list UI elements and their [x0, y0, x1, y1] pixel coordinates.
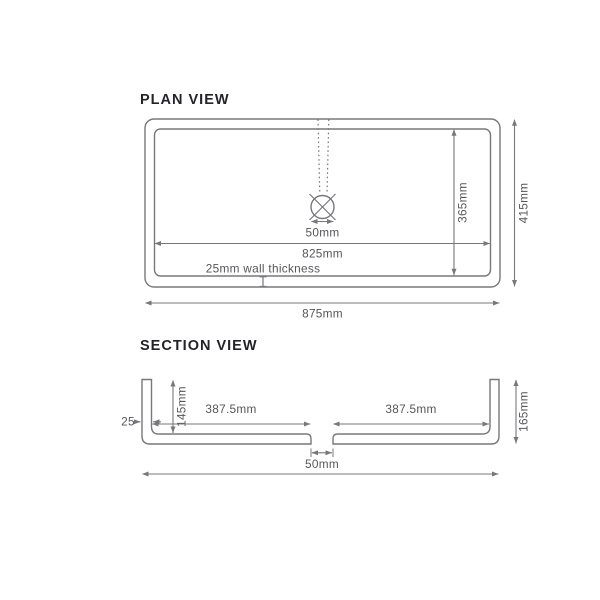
- plan-outer-rim: [145, 119, 500, 287]
- section-dim-label-overall-height: 165mm: [517, 391, 531, 432]
- section-dim-label-bowl-depth: 145mm: [175, 386, 189, 427]
- section-dim-label-wall-thickness: 25: [121, 415, 135, 429]
- wall-thickness-tick: [260, 277, 267, 287]
- technical-drawing-page: PLAN VIEW 50mm 825mm 25mm wall thickness…: [0, 0, 600, 600]
- plan-dim-label-overall-depth: 415mm: [517, 183, 531, 224]
- plan-wall-thickness-note: 25mm wall thickness: [206, 262, 321, 276]
- plan-dim-label-inner-depth: 365mm: [456, 182, 470, 223]
- tap-centerline-left-icon: [318, 120, 320, 195]
- plan-dim-label-overall-width: 875mm: [302, 307, 343, 321]
- section-view-title: SECTION VIEW: [140, 338, 258, 354]
- drain-symbol-icon: [310, 194, 336, 220]
- plan-dim-label-drain-width: 50mm: [306, 226, 340, 240]
- drawing-canvas: PLAN VIEW 50mm 825mm 25mm wall thickness…: [0, 0, 600, 600]
- section-dim-label-drain-width: 50mm: [305, 457, 339, 471]
- section-view: SECTION VIEW 25 145mm 387.5mm 387.5mm 16…: [121, 338, 530, 474]
- section-dim-label-left-half: 387.5mm: [205, 402, 256, 416]
- plan-view-title: PLAN VIEW: [140, 92, 230, 108]
- section-dim-label-right-half: 387.5mm: [385, 402, 436, 416]
- plan-dim-label-inner-width: 825mm: [302, 247, 343, 261]
- plan-view: PLAN VIEW 50mm 825mm 25mm wall thickness…: [140, 92, 531, 321]
- tap-centerline-right-icon: [327, 120, 329, 195]
